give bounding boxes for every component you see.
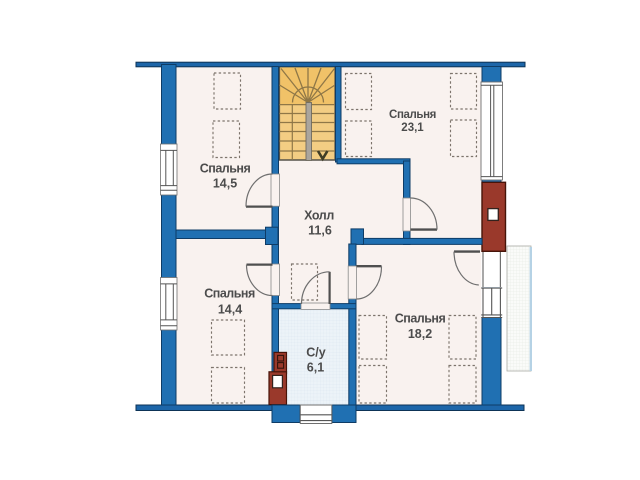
svg-text:14,5: 14,5 <box>213 177 237 191</box>
svg-text:С/у: С/у <box>306 346 326 360</box>
svg-text:23,1: 23,1 <box>401 122 424 134</box>
svg-text:18,2: 18,2 <box>408 327 432 341</box>
svg-text:Спальня: Спальня <box>389 109 436 121</box>
svg-text:14,4: 14,4 <box>218 303 242 317</box>
svg-text:6,1: 6,1 <box>307 361 324 375</box>
svg-text:Холл: Холл <box>304 209 334 223</box>
svg-text:Спальня: Спальня <box>395 312 446 326</box>
svg-text:Спальня: Спальня <box>204 287 255 301</box>
svg-text:11,6: 11,6 <box>308 224 332 238</box>
svg-text:Спальня: Спальня <box>200 162 251 176</box>
